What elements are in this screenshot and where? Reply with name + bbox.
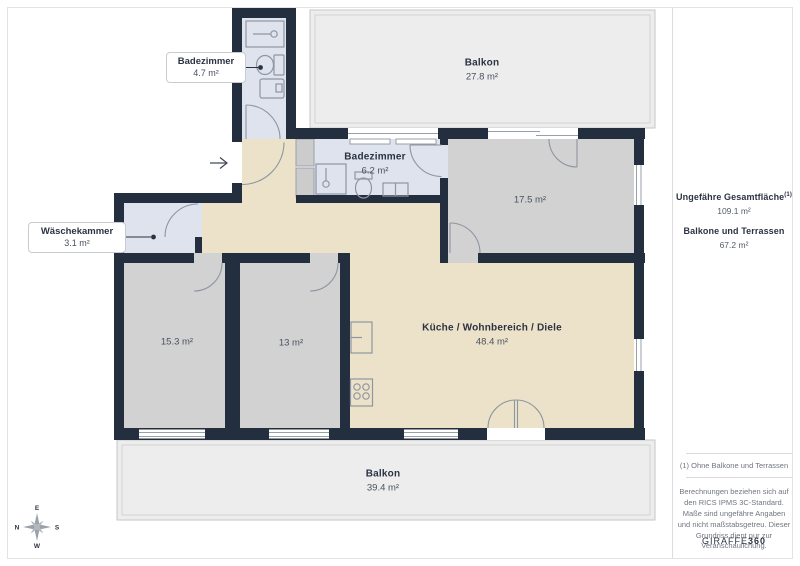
brand-logo: GIRAFFE360 xyxy=(674,536,794,546)
compass-right-label: S xyxy=(55,525,60,532)
total-area-label: Ungefähre Gesamtfläche(1) xyxy=(674,192,794,202)
hall-floor xyxy=(242,139,296,203)
balcony-bottom xyxy=(117,440,655,520)
room-175-floor xyxy=(448,139,634,253)
wardrobe-lower xyxy=(296,168,314,197)
area-summary: Ungefähre Gesamtfläche(1) 109.1 m² Balko… xyxy=(674,192,794,250)
footnote: (1) Ohne Balkone und Terrassen xyxy=(672,461,796,470)
compass-left-label: N xyxy=(15,525,20,532)
entrance-arrow-icon xyxy=(210,158,227,169)
compass-bottom-label: W xyxy=(34,543,41,550)
compass-top-label: E xyxy=(35,505,40,512)
corridor-floor xyxy=(202,203,440,253)
living-floor xyxy=(350,253,634,428)
wardrobe-upper xyxy=(296,139,314,166)
floor-plan-drawing: E N S W xyxy=(0,0,800,566)
balconies-area-label: Balkone und Terrassen xyxy=(674,226,794,236)
compass-rose-icon: E N S W xyxy=(15,505,60,550)
balconies-area-value: 67.2 m² xyxy=(674,240,794,250)
label-laundry: Wäschekammer 3.1 m² xyxy=(28,222,126,253)
total-area-value: 109.1 m² xyxy=(674,206,794,216)
label-bathroom-small: Badezimmer 4.7 m² xyxy=(166,52,246,83)
room-bathroom-floor xyxy=(314,139,440,195)
floorplan-page: E N S W Balkon 27.8 m² Badezimmer 4.7 m²… xyxy=(0,0,800,566)
laundry-floor xyxy=(124,203,195,253)
room-13-floor xyxy=(240,263,340,428)
balcony-top xyxy=(310,10,655,128)
room-153-floor xyxy=(124,263,225,428)
